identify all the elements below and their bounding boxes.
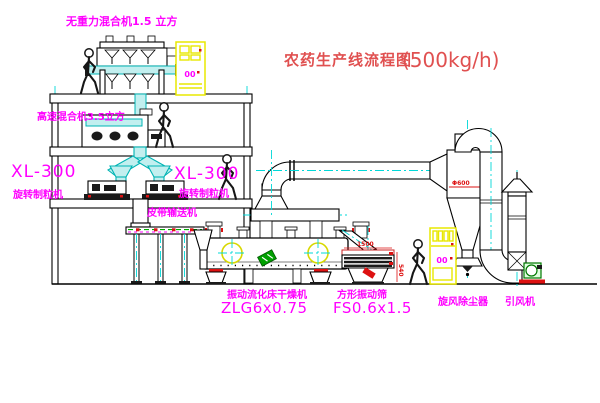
cyclone-diameter-dim: Φ600 [452, 180, 470, 187]
label-sieve-model: FS0.6x1.5 [333, 299, 412, 317]
title-text: 农药生产线流程图 [283, 51, 412, 69]
label-granulator-right-name: 旋转制粒机 [178, 187, 229, 200]
label-mid-mixer: 高速混合机3.5立方 [37, 110, 125, 123]
cabinet-display: 00 [436, 256, 448, 265]
label-dryer-model: ZLG6x0.75 [221, 299, 308, 317]
cyclone-inlet [430, 154, 447, 191]
vibrating-sieve-machine: 1500 540 [340, 226, 404, 284]
slab-middle [50, 147, 252, 156]
worker-figure-ground [410, 240, 427, 284]
control-cabinet-top: 00 [176, 42, 205, 95]
duct-flange [131, 223, 150, 227]
label-granulator-right-model: XL-300 [174, 164, 239, 184]
exhaust-duct [255, 150, 447, 218]
slab-lower [50, 199, 252, 208]
duct-elbow [262, 162, 290, 190]
belt-conveyor-machine [126, 227, 204, 284]
title-capacity: (500kg/h) [402, 48, 499, 72]
label-fan: 引风机 [505, 295, 535, 308]
label-cyclone: 旋风除尘器 [437, 295, 489, 308]
flow-diagram-canvas: 00 [0, 0, 600, 403]
indicator-dot [450, 257, 453, 260]
fan-base [519, 280, 545, 284]
granulator-left-machine [84, 181, 130, 200]
conveyor-legs [131, 234, 190, 284]
label-conveyor: 皮带输送机 [146, 206, 197, 219]
mixer-leg-right [159, 70, 164, 94]
mixer-leg-left [100, 70, 105, 94]
control-cabinet-ground: 00 [430, 228, 456, 284]
slab-top [50, 94, 252, 103]
label-granulator-left-model: XL-300 [11, 162, 76, 182]
sieve-length-dim: 1500 [357, 241, 374, 248]
stack-body [508, 196, 526, 252]
label-granulator-left-name: 旋转制粒机 [12, 188, 63, 201]
label-top-mixer: 无重力混合机1.5 立方 [65, 14, 177, 28]
dryer-hood [251, 209, 339, 221]
granulator-down-duct [133, 199, 148, 225]
dryer-feet [206, 269, 331, 284]
cyclone-discharge [453, 258, 482, 266]
indicator-dot [197, 71, 200, 74]
drawing-title: 农药生产线流程图 (500kg/h) [283, 48, 499, 72]
mixer-funnels [105, 50, 155, 64]
stack-cap [502, 179, 532, 192]
cabinet-display: 00 [184, 70, 196, 79]
fluid-bed-dryer-machine [194, 209, 370, 284]
sieve-height-dim: 540 [397, 264, 404, 277]
u-bend-pipe [455, 129, 502, 153]
process-flow-drawing: 00 [0, 0, 600, 403]
mixer-discharge-valves [106, 74, 154, 89]
sieve-top-frame [342, 250, 394, 255]
indicator-dot [199, 49, 202, 52]
indicator-dot [451, 243, 454, 246]
